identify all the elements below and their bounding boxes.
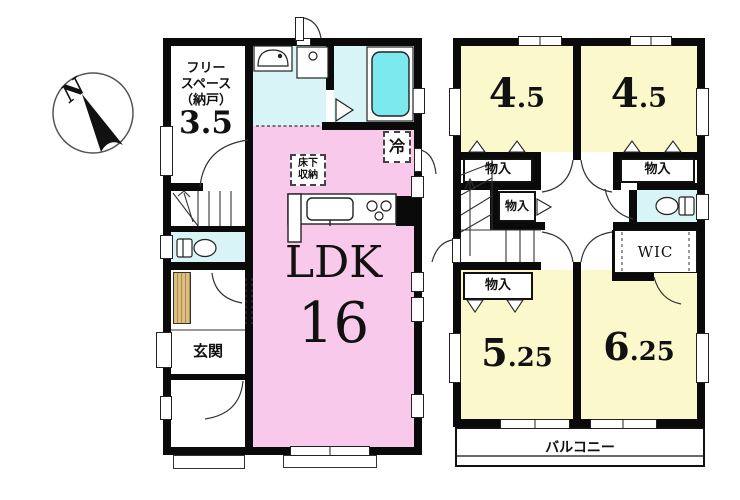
balcony-label: バルコニー: [455, 441, 705, 455]
wall: [396, 196, 414, 226]
back-door-gap: [414, 148, 422, 172]
wall: [245, 38, 253, 191]
closet-tr-label: 物入: [620, 163, 695, 176]
wall: [245, 191, 253, 447]
window: [590, 419, 657, 429]
wall: [163, 262, 253, 270]
window: [411, 394, 424, 418]
wall: [453, 419, 705, 427]
closet-bl-label: 物入: [463, 279, 533, 292]
wall: [461, 183, 537, 190]
ldk-label: LDK: [253, 241, 414, 285]
door-gap: [452, 238, 461, 263]
closet-mid-label: 物入: [498, 200, 536, 212]
wall: [637, 183, 697, 190]
wic-label: WIC: [614, 245, 697, 260]
compass-needle-icon: [82, 94, 123, 152]
room-bath: [334, 46, 414, 122]
wall: [629, 190, 637, 222]
wall: [163, 374, 248, 380]
window: [449, 88, 461, 136]
free-space-label-2: スペース: [168, 78, 244, 91]
window: [411, 176, 424, 198]
stairs-1f: [173, 191, 231, 226]
wall: [322, 122, 414, 130]
wall: [461, 262, 541, 270]
free-space-size: 3.5: [168, 108, 244, 139]
underfloor-storage-label-2: 収納: [290, 171, 326, 181]
window: [449, 333, 461, 383]
wall: [490, 190, 498, 222]
ldk-size: 16: [253, 296, 414, 352]
entrance-door: [156, 332, 172, 368]
window: [630, 36, 672, 46]
room-2f-tl-size: 4.5: [461, 74, 573, 114]
window: [160, 235, 173, 259]
window: [696, 194, 709, 220]
wall: [573, 38, 581, 160]
room-toilet-2f: [637, 190, 697, 222]
door-leaf: [295, 17, 304, 41]
wall: [163, 226, 253, 232]
wall: [613, 222, 697, 230]
wall: [326, 38, 334, 90]
window: [518, 36, 562, 46]
free-space-label-1: フリー: [168, 62, 244, 75]
wall: [533, 152, 541, 190]
wall: [163, 183, 203, 191]
room-2f-bl-size: 5.25: [461, 334, 573, 372]
window: [290, 446, 370, 456]
window: [500, 419, 570, 429]
room-2f-br-size: 6.25: [581, 328, 697, 366]
shoe-cabinet: [173, 272, 191, 324]
window: [160, 396, 172, 420]
floor-plan: N: [0, 0, 740, 500]
refrigerator-label: 冷: [383, 139, 411, 155]
compass-north-label: N: [55, 71, 92, 109]
porch-step: [173, 455, 245, 469]
room-2f-tr-size: 4.5: [581, 74, 697, 114]
room-toilet-1f: [171, 232, 245, 262]
wall: [573, 262, 581, 419]
closet-tl-label: 物入: [463, 163, 533, 176]
underfloor-storage-label-1: 床下: [290, 159, 326, 169]
window: [412, 88, 425, 114]
wall: [612, 273, 654, 281]
room-washroom: [253, 46, 326, 126]
terrace-step: [283, 455, 377, 468]
wall: [163, 38, 422, 46]
entrance-label: 玄関: [171, 344, 245, 359]
compass: N: [53, 71, 133, 153]
window: [696, 333, 709, 383]
window: [696, 88, 709, 136]
wall: [490, 222, 545, 230]
